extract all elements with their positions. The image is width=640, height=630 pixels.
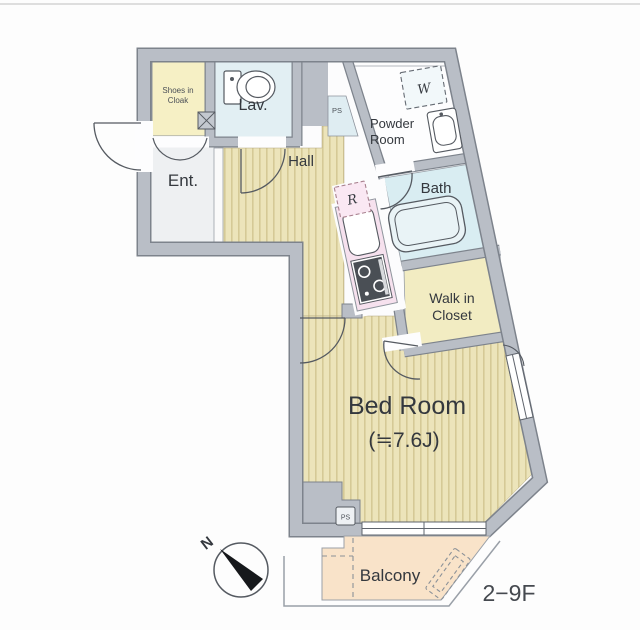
entrance-door-icon <box>94 123 141 170</box>
lavatory-door-opening <box>238 137 286 148</box>
pipe-space-upper-label: PS <box>332 106 342 115</box>
entrance-step <box>214 148 223 243</box>
bedroom-label: Bed Room <box>348 392 466 420</box>
shoes-cloak-label-1: Shoes in <box>162 86 193 95</box>
pipe-space-lower-label: PS <box>341 515 351 522</box>
shoes-cloak-label-2: Cloak <box>168 96 189 105</box>
pipe-shaft-icon <box>198 112 215 129</box>
cloak-door-opening <box>151 137 209 148</box>
closet-label-1: Walk in <box>429 290 474 306</box>
room-hall-floor <box>218 126 344 316</box>
entrance-label: Ent. <box>168 171 198 190</box>
entrance-door-opening <box>135 121 153 172</box>
powder-label-2: Room <box>370 132 405 147</box>
powder-label-1: Powder <box>370 116 415 131</box>
north-label: N <box>198 533 217 553</box>
balcony-label: Balcony <box>360 566 421 585</box>
floor-plan-page: N Shoes in Cloak Lav. Ent. Hall PS Powde… <box>0 0 640 630</box>
lavatory-label: Lav. <box>238 97 267 114</box>
closet-label-2: Closet <box>432 307 472 323</box>
north-arrow <box>220 549 263 591</box>
floor-range-label: 2−9F <box>482 580 535 606</box>
hall-label: Hall <box>288 153 314 170</box>
floor-plan-canvas: N Shoes in Cloak Lav. Ent. Hall PS Powde… <box>0 0 640 630</box>
compass-icon: N <box>198 533 268 597</box>
bath-label: Bath <box>421 180 452 197</box>
bedroom-size-label: (≒7.6J) <box>368 429 439 452</box>
